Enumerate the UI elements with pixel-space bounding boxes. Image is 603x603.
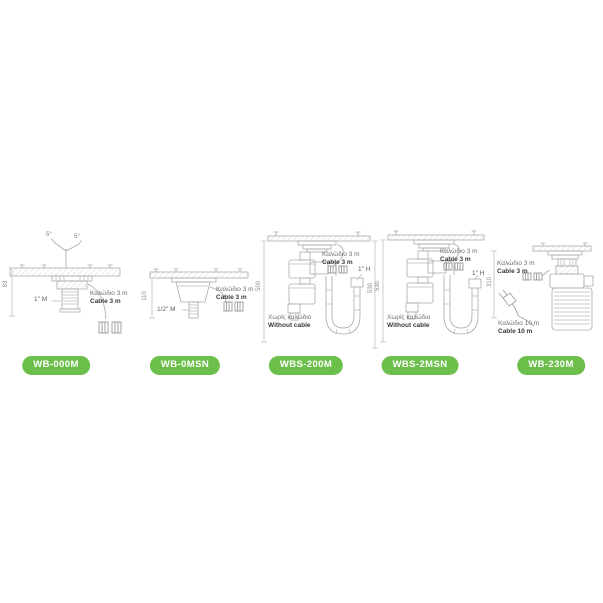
panel-wbs-2msn: Καλώδιο 3 m Cable 3 m 1" H Χωρίς καλώδιο… [378,228,492,354]
cable-label-greek: Καλώδιο 3 m [440,248,478,256]
dimension-label-left: 500 [256,281,262,291]
catalog-page: 5° 5° 83 1" M Καλώδιο 3 m Cable 3 m [0,0,603,603]
dimension-label-height: 83 [3,281,9,288]
cable-label-greek: Καλώδιο 3 m [322,251,360,259]
drawing-siphon-with-hose [258,230,380,354]
thread-size-label: 1" H [472,270,484,278]
panel-wb-230m: Καλώδιο 3 m Cable 3 m 310 Καλώδιο 10 m C… [490,242,603,338]
dimension-label-left: 530 [375,281,381,291]
cable-label-english: Cable 3 m [440,256,471,264]
product-badge-wb-230m[interactable]: WB-230M [517,356,585,375]
panel-wbs-200m: Καλώδιο 3 m Cable 3 m 1" H Χωρίς καλώδιο… [258,230,380,354]
thread-size-label: 1/2" M [157,306,176,314]
cable-label-english: Cable 3 m [497,268,528,276]
no-cable-label-greek: Χωρίς καλώδιο [387,314,430,322]
dimension-label-right: 530 [368,283,374,293]
cable-label-english: Cable 3 m [322,259,353,267]
cable-label-greek: Καλώδιο 3 m [216,286,254,294]
cable10-label-english: Cable 10 m [498,328,532,336]
drawing-siphon-with-hose [378,228,492,354]
no-cable-label-english: Without cable [387,322,430,330]
drawing-compact-waste [140,262,258,342]
angle-label-right: 5° [74,234,80,241]
product-badge-wbs-2msn[interactable]: WBS-2MSN [382,356,459,375]
product-badge-wb-000m[interactable]: WB-000M [22,356,90,375]
cable-label-greek: Καλώδιο 3 m [90,290,128,298]
dimension-label-height: 110 [142,291,148,301]
panel-wb-000m: 5° 5° 83 1" M Καλώδιο 3 m Cable 3 m [2,232,130,350]
panel-wb-0msn: 110 1/2" M Καλώδιο 3 m Cable 3 m [140,262,258,342]
no-cable-label-greek: Χωρίς καλώδιο [268,314,311,322]
cable-label-english: Cable 3 m [216,294,247,302]
no-cable-label-english: Without cable [268,322,311,330]
cable-label-english: Cable 3 m [90,298,121,306]
thread-size-label: 1" M [34,296,47,304]
dimension-label-left: 310 [487,277,493,287]
cable10-label-greek: Καλώδιο 10 m [498,320,539,328]
thread-size-label: 1" H [358,266,370,274]
angle-label-left: 5° [46,232,52,239]
product-badge-wb-0msn[interactable]: WB-0MSN [150,356,220,375]
product-badge-wbs-200m[interactable]: WBS-200M [269,356,343,375]
cable-label-greek: Καλώδιο 3 m [497,260,535,268]
